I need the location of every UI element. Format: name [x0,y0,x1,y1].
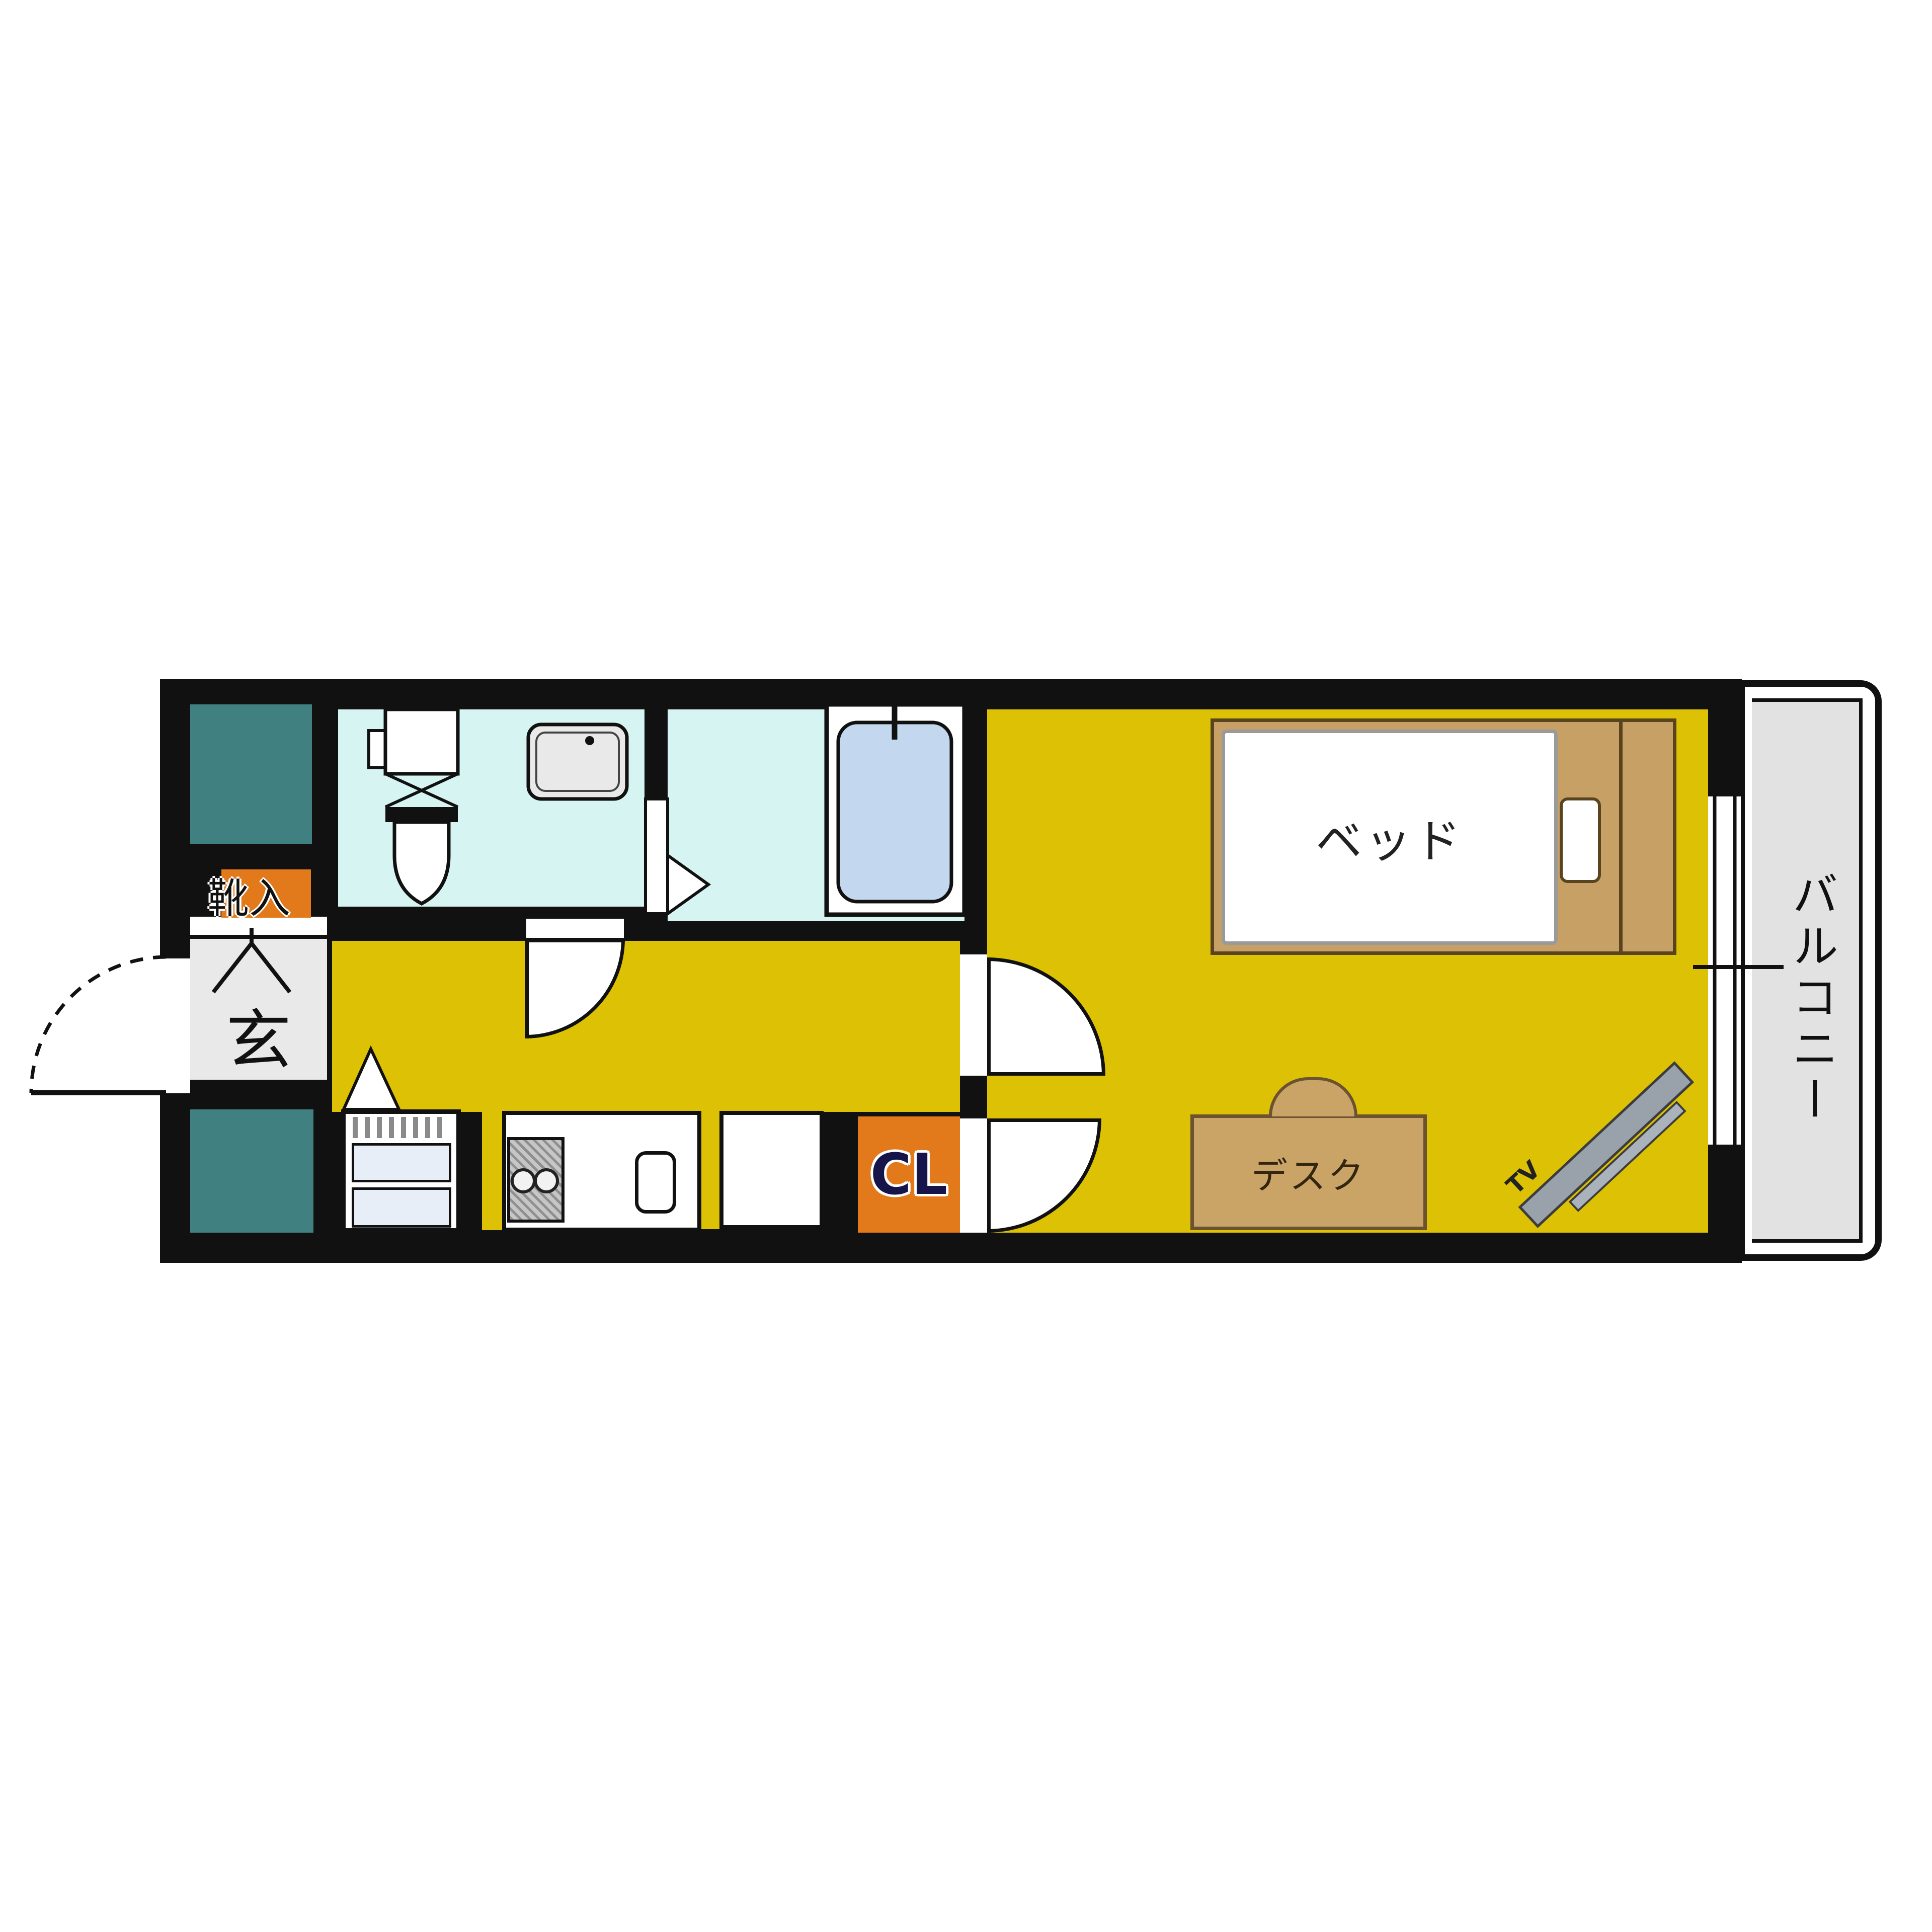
pillow [1560,797,1601,883]
kitchen-sink-icon [635,1151,676,1214]
closet-box: CL [858,1116,960,1233]
refrigerator-icon [341,1109,461,1233]
refrigerator-top-hatch [353,1117,449,1138]
shoe-cabinet-label: 靴入 [184,871,314,918]
bed-mattress: ベッド [1222,730,1558,945]
floor-plan: CL ベッド デスク バルコニー 靴入 玄 [0,0,1932,1932]
closet-door-opening [960,1118,987,1233]
bed-headboard-divider [1619,718,1623,955]
floor-gap-strip [482,1109,503,1230]
sliding-window [1708,796,1741,1145]
room-door-opening [960,954,987,1076]
entrance-step-edge [190,935,327,939]
kitchen-counter-side [719,1111,824,1229]
hallway-kitchen-floor [332,941,960,1112]
stove-icon [507,1137,565,1223]
bed-label: ベッド [1316,804,1464,871]
bath-floor [668,709,964,921]
entrance-door-swing [31,957,166,1093]
washroom-floor [338,709,645,907]
shoe-cabinet-top-fixture [190,704,312,844]
floor-gap-strip [701,1109,719,1229]
washroom-door-opening [526,919,624,938]
teal-fixture-bottom [190,1109,313,1233]
entrance-label: 玄 [190,997,327,1073]
refrigerator-compartment [352,1187,451,1228]
refrigerator-compartment [352,1143,451,1182]
closet-label: CL [870,1142,948,1207]
desk-label: デスク [1251,1146,1366,1199]
desk: デスク [1190,1114,1427,1230]
entrance-door-opening [160,958,190,1093]
balcony-label: バルコニー [1776,825,1846,1172]
